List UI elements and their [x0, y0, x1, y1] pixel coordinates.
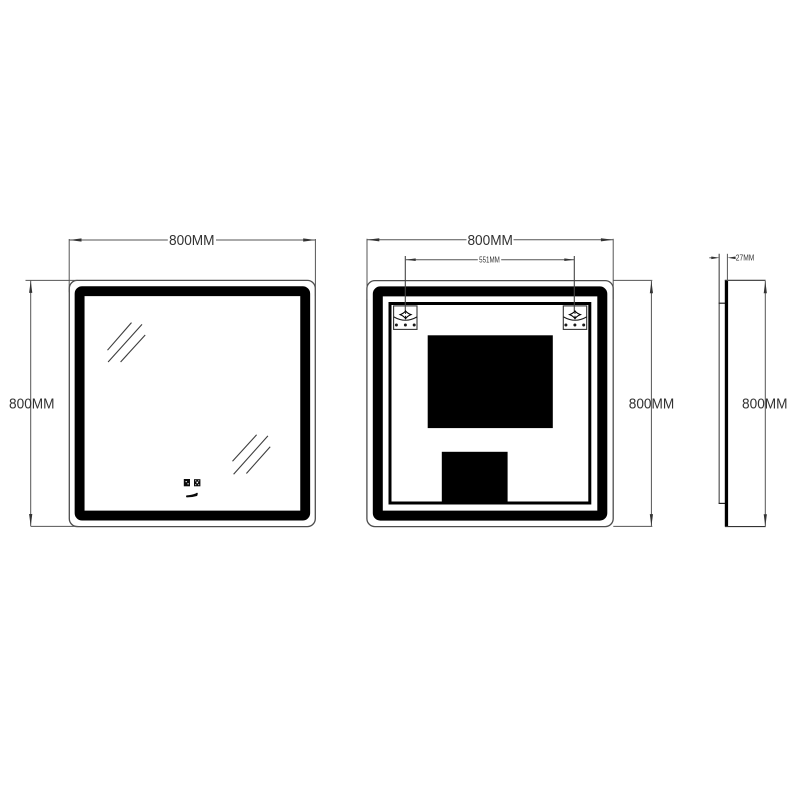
- svg-text:800MM: 800MM: [9, 396, 55, 412]
- svg-text:800MM: 800MM: [467, 233, 513, 249]
- svg-text:800MM: 800MM: [169, 233, 215, 249]
- svg-text:551MM: 551MM: [479, 255, 500, 264]
- svg-text:27MM: 27MM: [736, 253, 755, 262]
- svg-text:800MM: 800MM: [742, 396, 788, 412]
- svg-text:800MM: 800MM: [629, 396, 675, 412]
